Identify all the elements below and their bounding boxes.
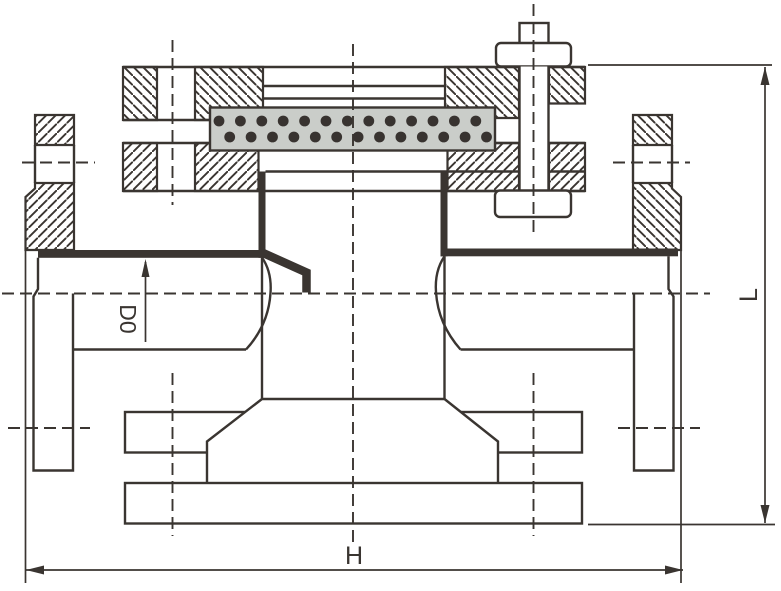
gasket-dot (385, 116, 396, 127)
gasket-dot (470, 116, 481, 127)
gasket-dot (417, 132, 428, 143)
dim-label-d0: D0 (115, 304, 141, 333)
gasket-dot (460, 132, 471, 143)
left-flange-lower-outline (34, 258, 74, 471)
lower-plate-section-4 (549, 143, 585, 191)
gasket-dot (214, 116, 225, 127)
d0-arrow (142, 259, 150, 277)
left-flange-hub-section (26, 183, 75, 250)
gasket-dot (449, 116, 460, 127)
dim-label-h: H (345, 542, 363, 570)
gasket-dot (363, 116, 374, 127)
gasket-dot (353, 132, 364, 143)
gasket-dot (235, 116, 246, 127)
gasket-dot (428, 116, 439, 127)
bonnet (123, 23, 585, 217)
h-arrow-left (26, 566, 44, 575)
gasket-dot (396, 132, 407, 143)
lower-plate-section-1 (123, 143, 157, 191)
right-flange-rim-section (633, 115, 672, 145)
left-flange-rim-section (35, 115, 74, 145)
l-arrow-top (761, 67, 770, 85)
gasket-dot (246, 132, 257, 143)
gasket-dot (310, 132, 321, 143)
upper-plate-section-1 (123, 67, 157, 120)
gasket-dot (342, 116, 353, 127)
right-flange-lower-outline (634, 256, 674, 470)
liner-left-horizontal (38, 250, 266, 258)
valve-cross-section-drawing: H L D0 (0, 0, 781, 591)
bore-transition-arc-right (436, 256, 461, 349)
gasket-dot (278, 116, 289, 127)
technical-drawing-canvas: H L D0 (0, 0, 781, 591)
gasket-dot (267, 132, 278, 143)
gasket-dot (331, 132, 342, 143)
right-flange-hub-section (633, 183, 681, 250)
gasket-dot (406, 116, 417, 127)
bore-transition-arc-left (246, 258, 271, 350)
l-arrow-bottom (761, 505, 770, 523)
gasket-dot (299, 116, 310, 127)
gasket-dot (224, 132, 235, 143)
liner-right-horizontal (441, 249, 679, 257)
liner-right-vertical (441, 172, 448, 257)
gasket-dot (289, 132, 300, 143)
gasket-dot (256, 116, 267, 127)
gasket-dot (481, 132, 492, 143)
liner-left-vertical (259, 172, 266, 258)
dim-label-l: L (735, 288, 763, 302)
gasket-dot (321, 116, 332, 127)
gasket-dot (374, 132, 385, 143)
gasket-dot (438, 132, 449, 143)
upper-plate-section-4 (549, 67, 585, 104)
